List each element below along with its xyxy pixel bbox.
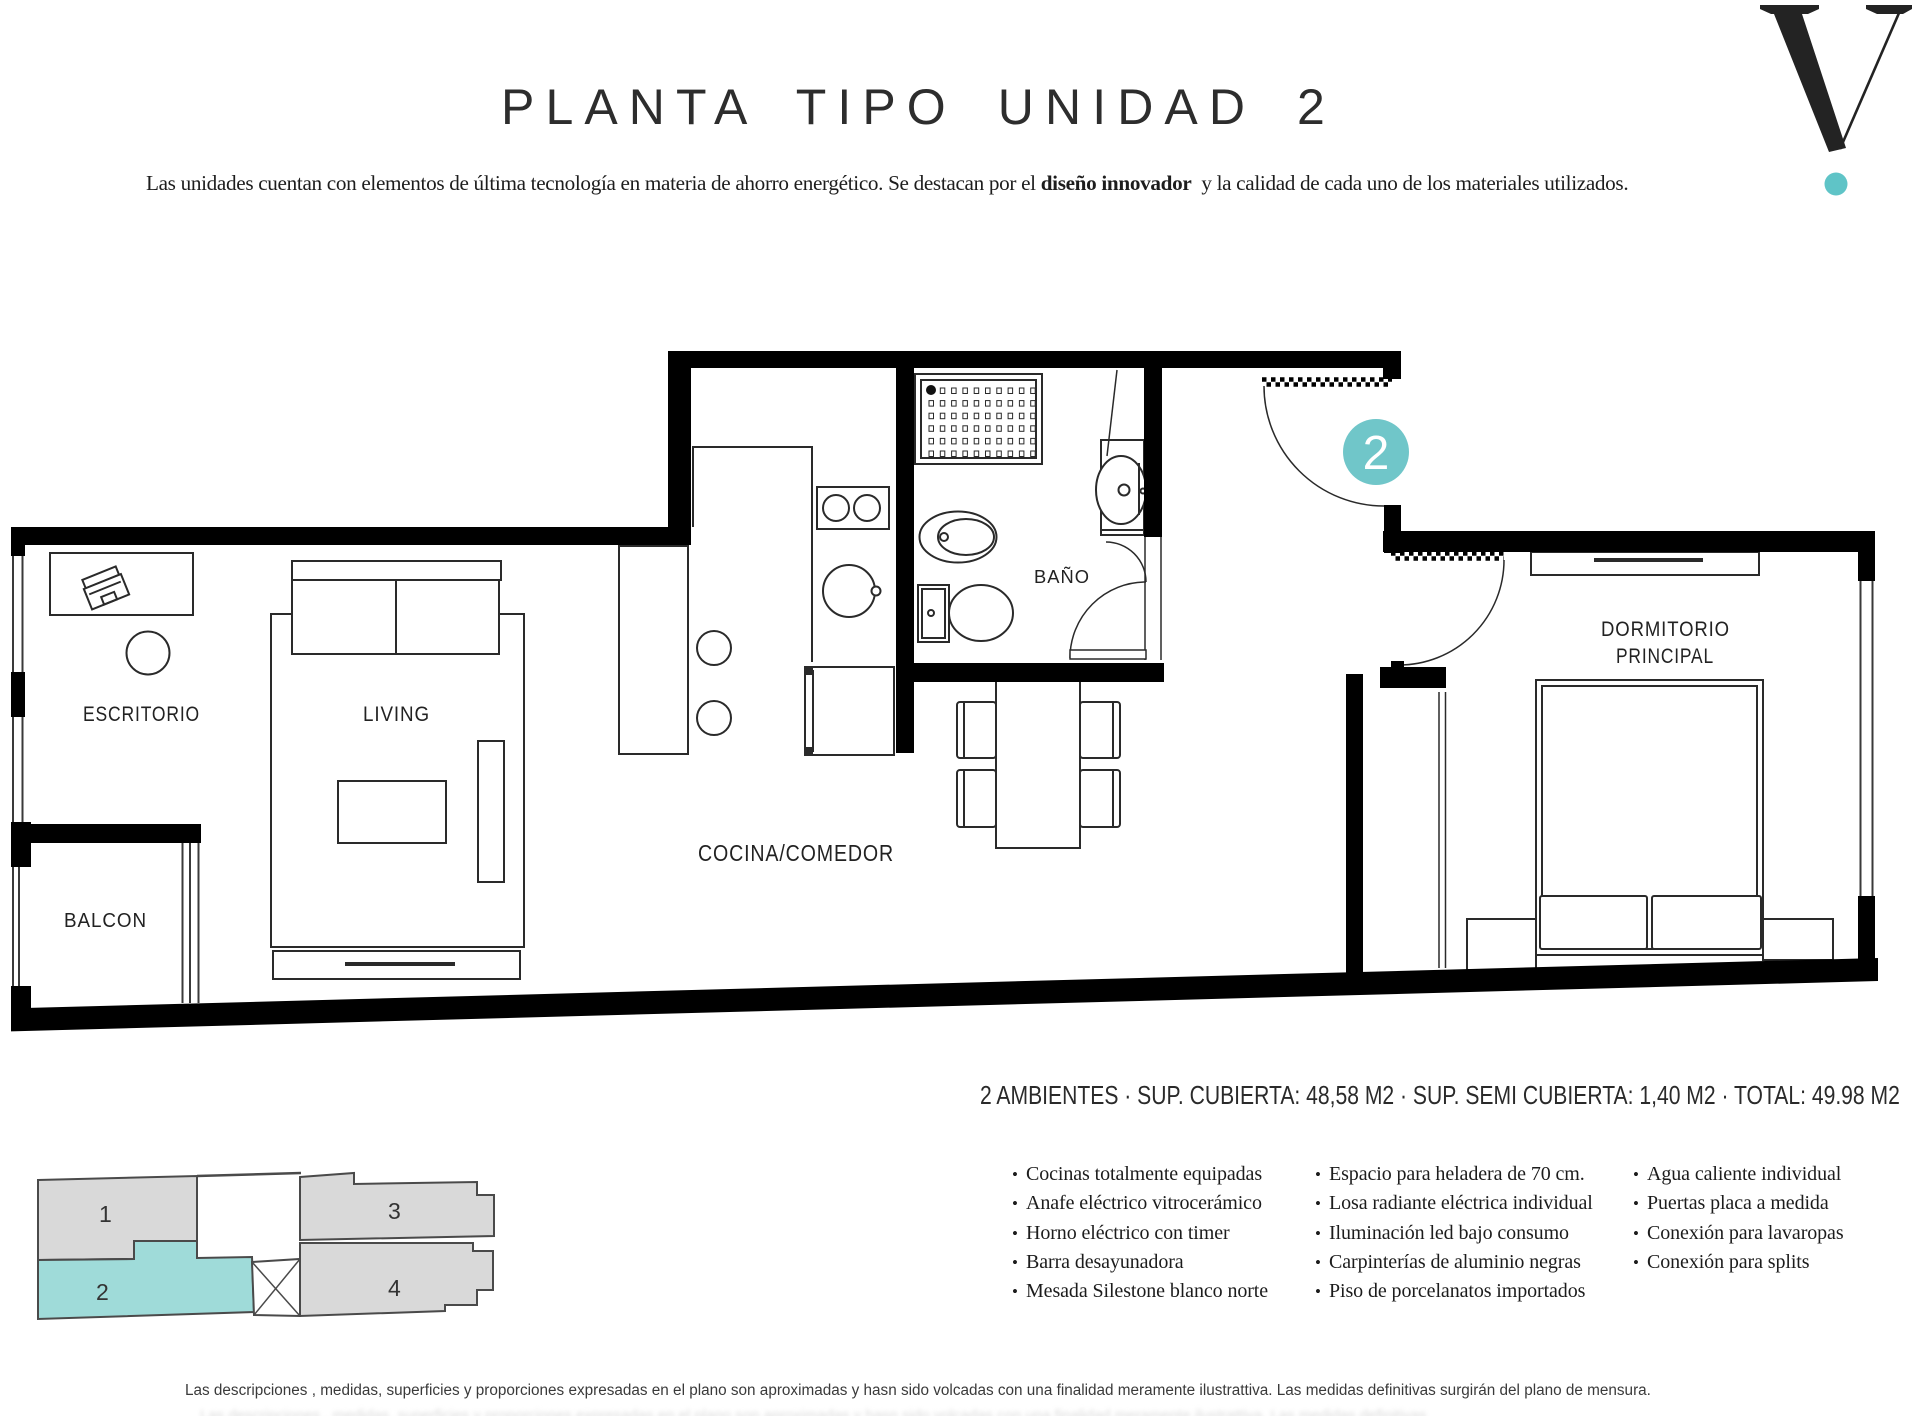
svg-text:PRINCIPAL: PRINCIPAL	[1616, 645, 1714, 668]
svg-text:3: 3	[388, 1198, 401, 1224]
svg-text:COCINA/COMEDOR: COCINA/COMEDOR	[698, 840, 894, 866]
svg-text:LIVING: LIVING	[363, 703, 430, 726]
svg-text:4: 4	[388, 1275, 401, 1301]
svg-text:BALCON: BALCON	[64, 910, 147, 932]
svg-text:2: 2	[1363, 427, 1390, 480]
svg-text:1: 1	[99, 1201, 112, 1227]
svg-text:2: 2	[96, 1279, 109, 1305]
svg-text:BAÑO: BAÑO	[1034, 566, 1090, 587]
svg-text:DORMITORIO: DORMITORIO	[1601, 618, 1730, 641]
svg-text:ESCRITORIO: ESCRITORIO	[83, 703, 200, 726]
